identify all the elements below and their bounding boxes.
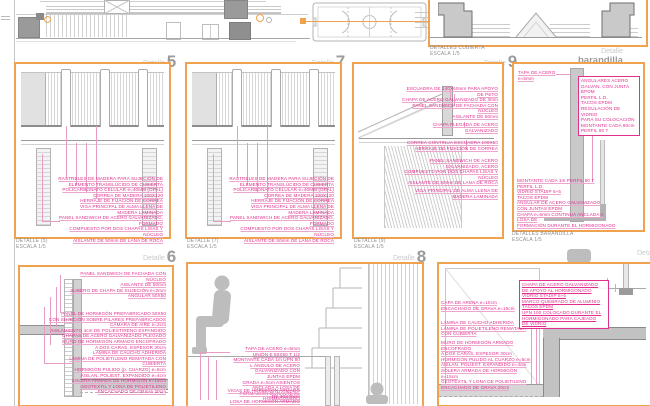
glass-balustrade	[623, 264, 629, 289]
label-detalle-6: Detalle6	[143, 250, 176, 263]
label-detalle-cut: Detalle	[637, 250, 650, 258]
section-cut-marker-left	[300, 18, 306, 24]
beam-line	[21, 140, 164, 145]
detail-marker-circle-small	[266, 17, 272, 23]
roof-detail-drawing	[430, 0, 646, 45]
railing-post	[334, 356, 340, 406]
annotations-barandilla-frame: ANGULARES ACERO GALVAN. CON JUNTA EPDM P…	[578, 76, 640, 136]
annotations-p7: RASTRELES DE MADERA PARA SUJECIÓN DE ELE…	[226, 176, 334, 243]
court-plan	[312, 2, 427, 42]
annotation-chapa-plegada: CHAPA PLEGADA DE ACERO GALVANIZADO	[402, 122, 498, 133]
caption-cubierta: DETALLES CUBIERTA ESCALA 1/5	[430, 45, 485, 58]
hatched-post-left	[36, 148, 51, 226]
railing-post	[325, 356, 331, 406]
panel-detalle-7: RASTRELES DE MADERA PARA SUJECIÓN DE ELE…	[185, 62, 342, 239]
caption-p5: DETALLE (5) ESCALA 1/5	[16, 238, 48, 251]
polycarbonate-roof-hatch	[192, 72, 335, 127]
hatched-post-left	[207, 148, 222, 226]
annotations-viga: VIGA PRINCIPAL DE ALMA LLENA DE MADERA L…	[402, 188, 498, 199]
detail-callout-thumb-right-top	[224, 0, 248, 19]
panel-detalle-foso: CAPA DE ARENA e=10cm ENCACHADO DE GRAVA …	[437, 262, 650, 406]
building-elevation	[16, 0, 308, 42]
braced-window	[104, 0, 130, 14]
annotations-foso-muro: MURO DE HORMIGÓN ARMADO ENCOFRADO A DOS …	[441, 340, 533, 390]
annotations-barandilla-base: MONTANTE CADA 1m PERFIL 80 T PERFIL L.D.…	[517, 178, 617, 228]
detail-callout-thumb-right-bottom	[229, 22, 251, 40]
annotations-foso-arena: CAPA DE ARENA e=10cm ENCACHADO DE GRAVA …	[441, 300, 527, 311]
legend-marks	[415, 12, 429, 28]
annotations-p6-top: PANEL SANDWICH DE FACHADA CON NÚCLEO AIS…	[66, 271, 166, 299]
annotations-panel-sandwich: PANEL SANDWICH DE ACERO GALVANIZADO, ACE…	[402, 158, 498, 186]
person-silhouette-partial	[360, 382, 394, 404]
panel-detalle-8: TAPA DE ACERO e=5mm UNIÓN E 50X50 T 1/2 …	[186, 262, 424, 406]
grada-steps	[296, 264, 366, 384]
annotation-tapa-acero: TAPA DE ACERO e=5mm	[518, 70, 570, 81]
ridge-shape	[514, 9, 558, 38]
edge-tick-marks	[1, 15, 10, 20]
annotations-p9-top: ESCUADRA DE 140X60mm PARA APOYO DE PETO …	[402, 86, 498, 120]
ground-line	[16, 38, 310, 39]
detail-marker-circle-left	[44, 16, 51, 23]
annotations-foso-frame: CHAPA DE ACERO GALVANIZADO DE APOYO AL H…	[519, 280, 609, 329]
caption-p7: DETALLE (7) ESCALA 1/5	[187, 238, 219, 251]
annotations-p5: RASTRELES DE MADERA PARA SUJECIÓN DE ELE…	[55, 176, 163, 243]
panel-detalle-barandilla: TAPA DE ACERO e=5mm ANGULARES ACERO GALV…	[512, 62, 645, 232]
annotations-p6-mid: PANEL DE HORMIGÓN PREFABRICADO 50X50 CON…	[48, 311, 166, 395]
panel-detalles-cubierta	[428, 0, 648, 47]
annotations-correa: CORREA CONTINUA ESCUADRA 100X50 HERRAJE …	[402, 140, 498, 151]
panel-detalle-5: RASTRELES DE MADERA PARA SUJECIÓN DE ELE…	[14, 62, 171, 239]
ground-shadow-line	[16, 41, 296, 42]
cladding-hatch	[46, 15, 128, 37]
drawing-sheet: DETALLES CUBIERTA ESCALA 1/5 Detalle5 De…	[0, 0, 650, 406]
caption-p9: DETALLE (9) ESCALA 1/5	[354, 238, 386, 251]
panel-detalle-6: PANEL SANDWICH DE FACHADA CON NÚCLEO AIS…	[18, 265, 174, 406]
polycarbonate-roof-hatch	[21, 72, 164, 127]
annotations-p8-b: VIGAS DE HORMIGÓN ARMADO DE 30X30cm LOSA…	[226, 388, 300, 406]
caption-barandilla: DETALLES BARANDILLA ESCALA 1/5	[512, 231, 574, 244]
upn-profile	[619, 288, 633, 295]
panel-detalle-9: ESCUADRA DE 140X60mm PARA APOYO DE PETO …	[352, 62, 504, 239]
detail-callout-thumb-left	[18, 17, 40, 38]
parapet-left	[438, 1, 478, 38]
beam-line	[192, 140, 335, 145]
parapet-right	[596, 1, 636, 38]
wall	[543, 338, 560, 397]
detail-callout-thumb-left-small	[36, 13, 44, 20]
detail-marker-circle	[256, 14, 264, 22]
